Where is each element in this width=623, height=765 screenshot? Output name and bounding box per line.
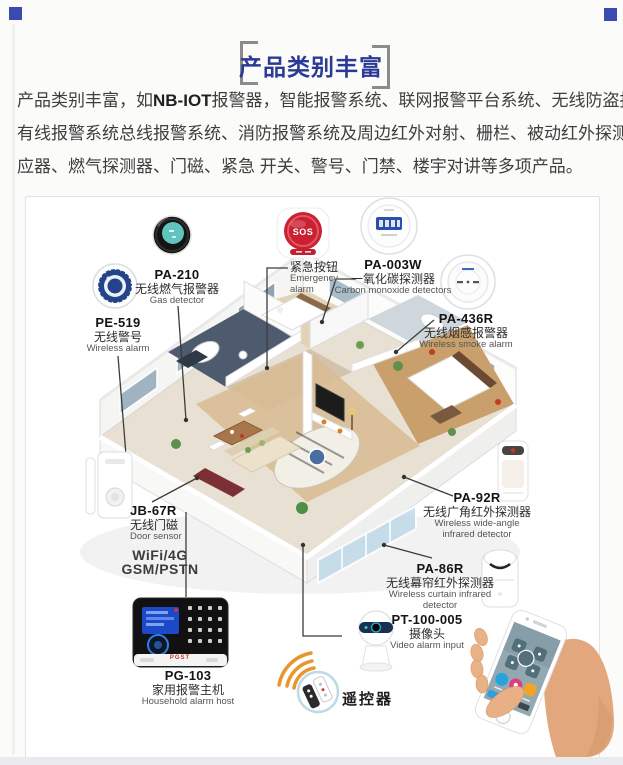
label-pa92r: PA-92R 无线广角红外探测器 Wireless wide-angle inf… [423, 491, 531, 540]
intro-line-1: 产品类别丰富，如NB-IOT报警器，智能报警系统、联网报警平台系统、无线防盗报警… [17, 84, 607, 117]
intro-paragraph: 产品类别丰富，如NB-IOT报警器，智能报警系统、联网报警平台系统、无线防盗报警… [17, 84, 607, 183]
label-pa003w: PA-003W 一氧化碳探测器 Carbon monoxide detector… [335, 258, 452, 297]
label-jb67r: JB-67R 无线门磁 Door sensor [130, 504, 182, 543]
label-pt100: PT-100-005 摄像头 Video alarm input [390, 613, 464, 652]
label-connectivity: WiFi/4G GSM/PSTN [121, 548, 198, 576]
label-pe519: PE-519 无线警号 Wireless alarm [87, 316, 150, 355]
label-pa436r: PA-436R 无线烟感报警器 Wireless smoke alarm [419, 312, 512, 351]
label-remote: 遥控器 [342, 688, 393, 709]
label-pa86r: PA-86R 无线幕帘红外探测器 Wireless curtain infrar… [386, 562, 494, 611]
page-title: 产品类别丰富 [239, 48, 383, 82]
sos-button-text: SOS [293, 227, 314, 237]
label-pa210: PA-210 无线燃气报警器 Gas detector [135, 268, 219, 307]
intro-line-2: 有线报警系统总线报警系统、消防报警系统及周边红外对射、栅栏、被动红外探测器、烟雾… [17, 117, 607, 150]
intro-line-3: 应器、燃气探测器、门磁、紧急 开关、警号、门禁、楼宇对讲等多项产品。 [17, 150, 607, 183]
label-sos: 紧急按钮 Emergency alarm [290, 260, 338, 295]
host-logo-text: PGST [170, 655, 190, 661]
bottom-strip [0, 757, 623, 765]
section-title: 产品类别丰富 [0, 20, 623, 70]
left-margin-stripe [12, 24, 15, 754]
label-pg103: PG-103 家用报警主机 Household alarm host [142, 669, 234, 708]
deco-square-left [9, 7, 22, 20]
